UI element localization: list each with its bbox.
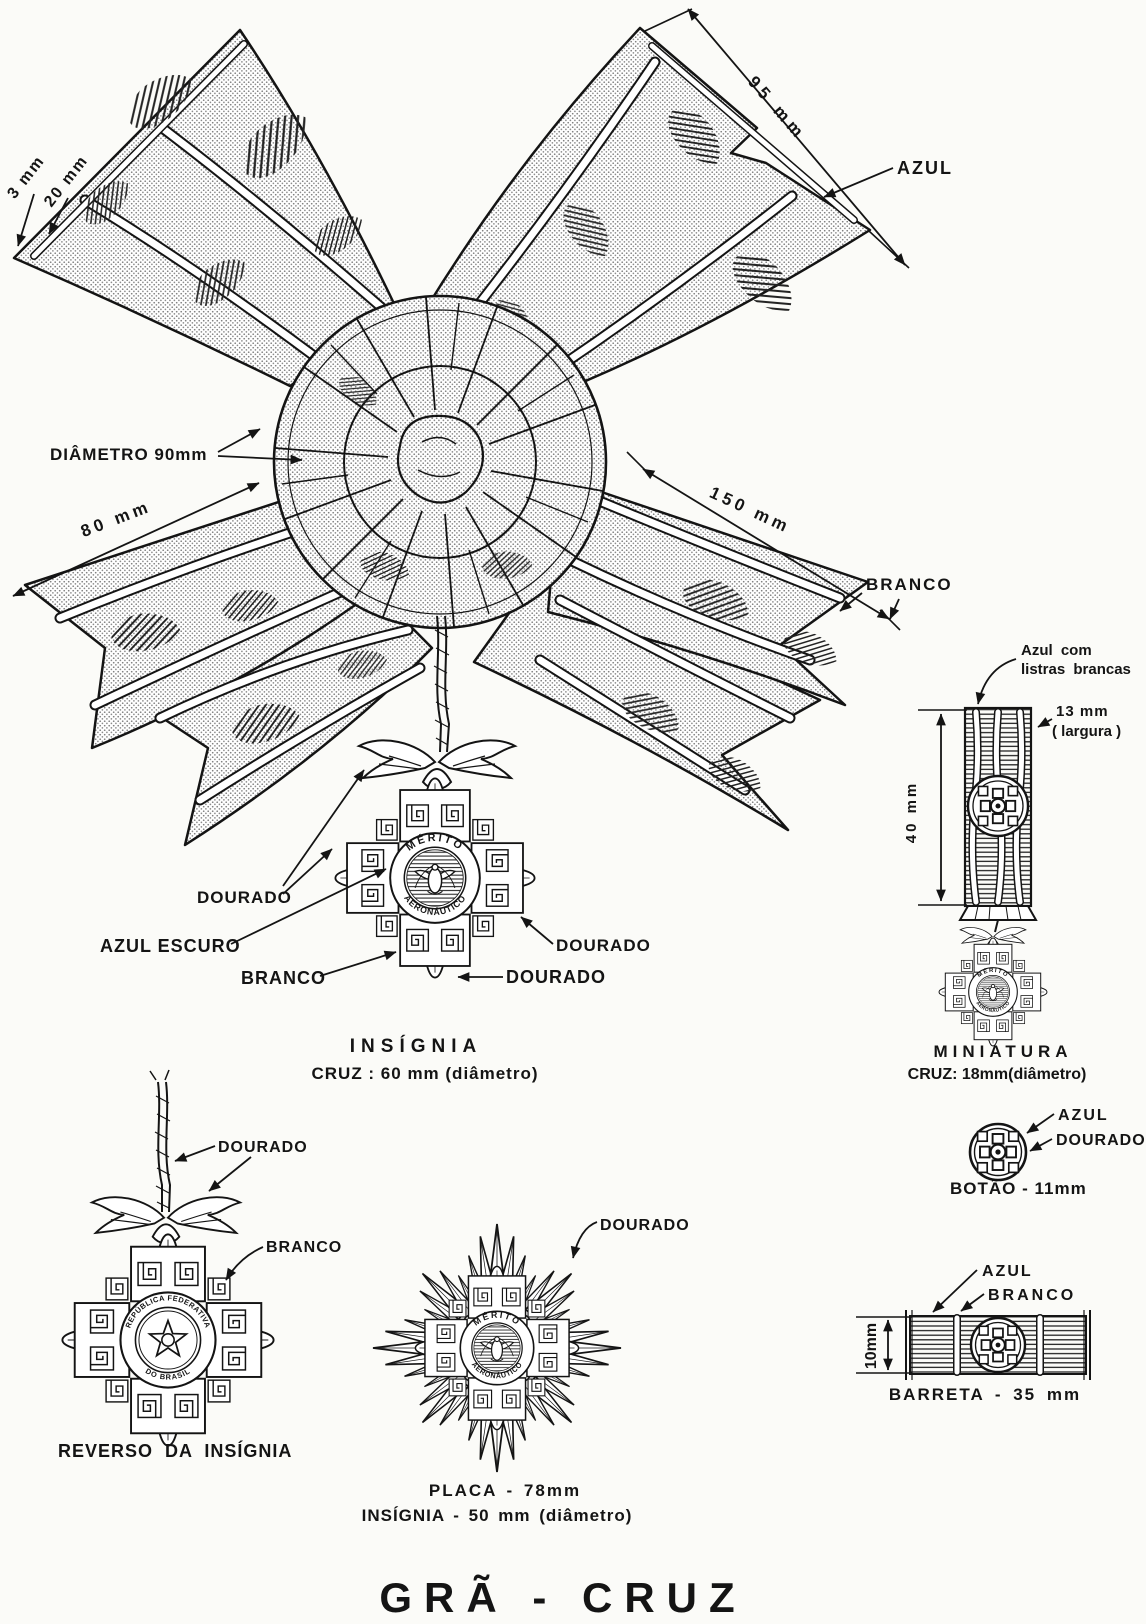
azul-listras-label-line1: Azul com <box>1021 642 1092 659</box>
barreta-caption: BARRETA - 35 mm <box>889 1385 1081 1404</box>
branco-label-sash: BRANCO <box>866 575 953 594</box>
insignia-size-caption: CRUZ : 60 mm (diâmetro) <box>311 1064 538 1083</box>
sash-bow <box>14 28 870 845</box>
barreta-figure <box>906 1310 1090 1380</box>
reverso-caption: REVERSO DA INSÍGNIA <box>58 1440 292 1461</box>
botao-caption: BOTÃO - 11mm <box>950 1178 1087 1198</box>
dim-80mm-label: 80 mm <box>78 497 154 541</box>
miniatura-cross <box>939 938 1047 1046</box>
placa-caption-line2: INSÍGNIA - 50 mm (diâmetro) <box>362 1506 633 1525</box>
placa-caption-line1: PLACA - 78mm <box>429 1481 581 1500</box>
page-title: GRÃ - CRUZ <box>379 1574 746 1621</box>
scanned-diagram-page: MÉRITO AERONÁUTICO <box>0 0 1146 1624</box>
miniatura-caption: MINIATURA <box>933 1042 1072 1061</box>
placa-figure <box>373 1224 621 1472</box>
miniatura-figure <box>939 708 1047 1046</box>
dim-3mm-label: 3 mm <box>4 152 48 202</box>
dim-40mm-label: 40 mm <box>903 781 920 844</box>
azul-label-botao: AZUL <box>1058 1107 1109 1124</box>
insignia-caption: INSÍGNIA <box>350 1035 482 1057</box>
dim-largura-label: ( largura ) <box>1052 723 1121 740</box>
dourado-label-reverso: DOURADO <box>218 1139 308 1156</box>
insignia-cross <box>335 778 534 977</box>
dim-13mm-label: 13 mm <box>1056 703 1109 720</box>
azul-listras-label-line2: listras brancas <box>1021 661 1131 678</box>
reverso-figure <box>62 1070 273 1446</box>
branco-label-reverso: BRANCO <box>266 1239 342 1256</box>
dourado-label-right: DOURADO <box>556 936 651 955</box>
gra-cruz-diagram: MÉRITO AERONÁUTICO <box>0 0 1146 1624</box>
dourado-label-placa: DOURADO <box>600 1217 690 1234</box>
diametro-90mm-label: DIÂMETRO 90mm <box>50 445 208 464</box>
azul-label-barreta: AZUL <box>982 1263 1033 1280</box>
dourado-label-botao: DOURADO <box>1056 1132 1146 1149</box>
botao-figure <box>970 1124 1026 1180</box>
azul-label-top: AZUL <box>897 158 953 178</box>
rosette <box>274 296 606 628</box>
azul-escuro-label: AZUL ESCURO <box>100 936 241 956</box>
dim-10mm-label: 10mm <box>863 1323 880 1369</box>
miniatura-size-caption: CRUZ: 18mm(diâmetro) <box>908 1066 1087 1083</box>
dourado-label-propeller: DOURADO <box>506 967 606 987</box>
dim-150mm-label: 150 mm <box>707 483 794 537</box>
branco-label-barreta: BRANCO <box>988 1287 1076 1304</box>
reverso-cross <box>62 1234 273 1445</box>
dourado-label-arms: DOURADO <box>197 888 292 907</box>
branco-label-insignia: BRANCO <box>241 968 326 988</box>
